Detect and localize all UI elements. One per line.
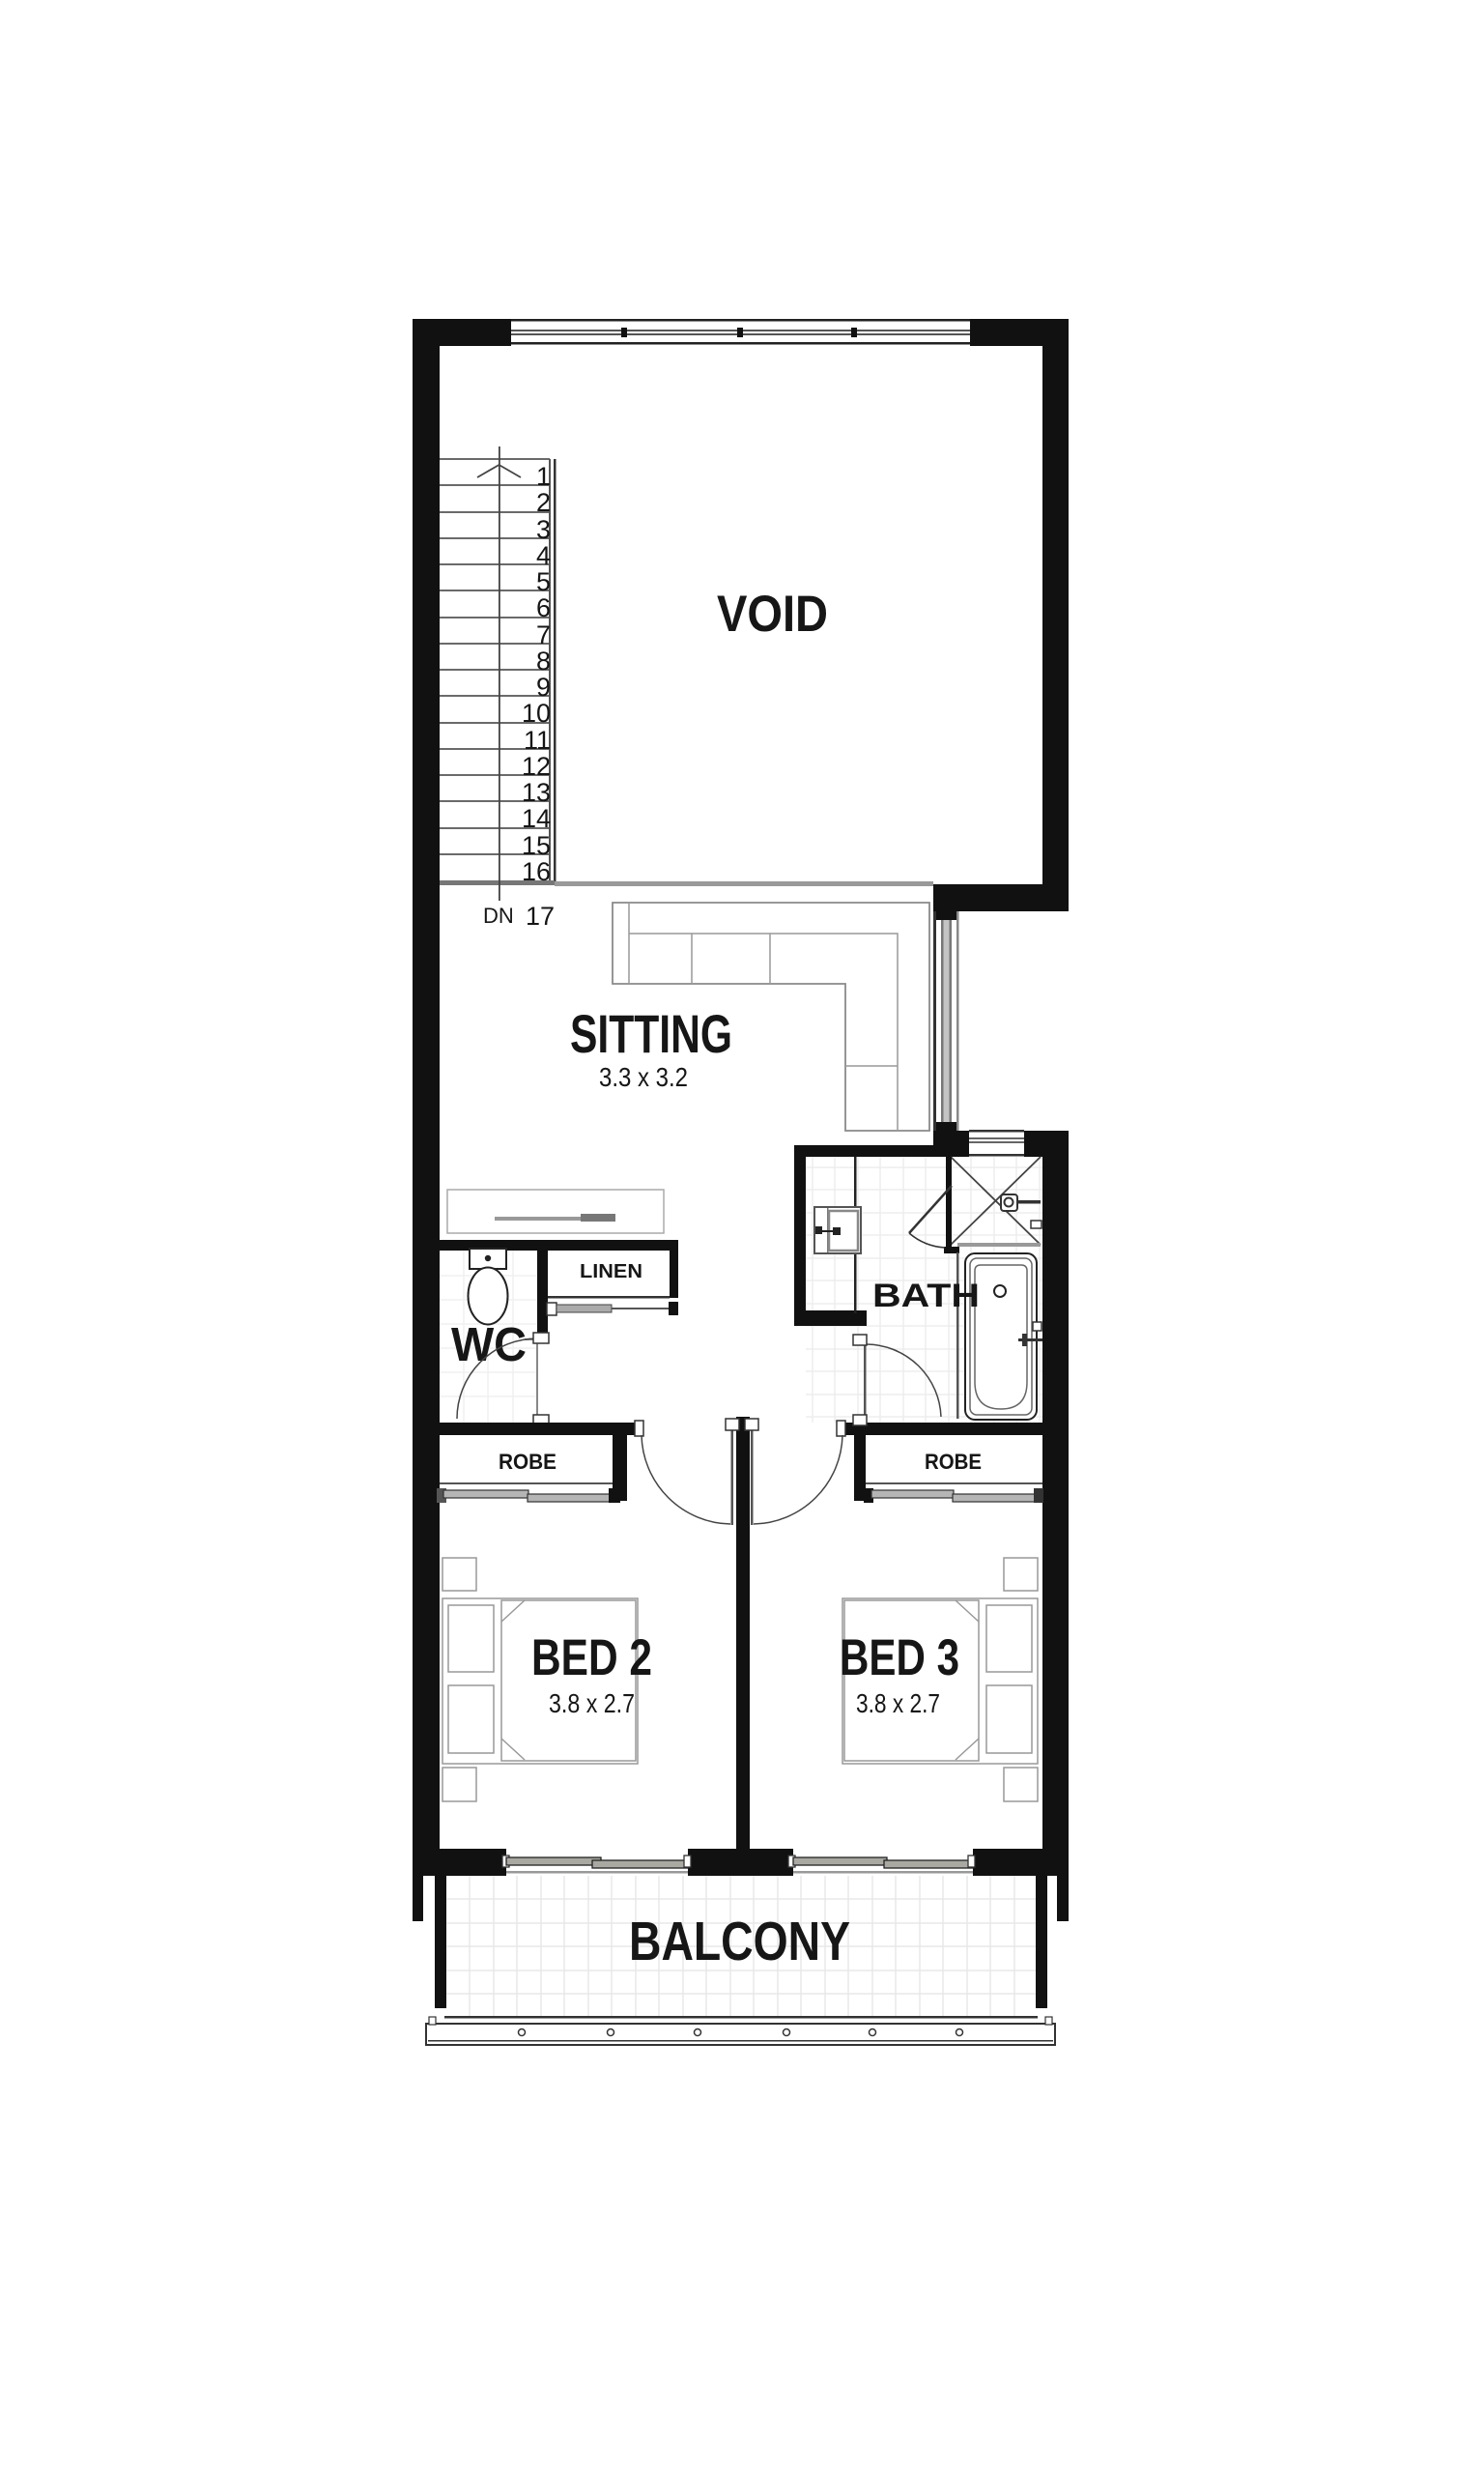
svg-text:BED 3: BED 3: [840, 1629, 959, 1686]
svg-text:1: 1: [536, 462, 551, 491]
svg-text:3: 3: [536, 515, 551, 544]
svg-text:4: 4: [536, 541, 551, 570]
svg-text:8: 8: [536, 647, 551, 676]
svg-text:6: 6: [536, 593, 551, 622]
svg-text:11: 11: [524, 726, 551, 755]
svg-text:BALCONY: BALCONY: [629, 1911, 850, 1972]
svg-text:WC: WC: [451, 1319, 527, 1371]
svg-text:SITTING: SITTING: [570, 1003, 732, 1064]
svg-text:VOID: VOID: [717, 586, 828, 643]
svg-text:LINEN: LINEN: [580, 1261, 642, 1282]
svg-text:ROBE: ROBE: [499, 1450, 556, 1474]
svg-text:13: 13: [522, 778, 551, 807]
svg-text:17: 17: [526, 902, 555, 931]
svg-text:BED 2: BED 2: [531, 1629, 652, 1686]
svg-text:9: 9: [536, 673, 551, 702]
svg-text:14: 14: [522, 804, 551, 833]
svg-text:3.8 x 2.7: 3.8 x 2.7: [549, 1688, 635, 1718]
svg-text:15: 15: [522, 831, 551, 860]
svg-text:7: 7: [536, 620, 551, 649]
svg-text:16: 16: [522, 857, 551, 886]
svg-text:3.3 x 3.2: 3.3 x 3.2: [599, 1062, 688, 1092]
svg-text:DN: DN: [483, 904, 514, 928]
svg-text:12: 12: [522, 752, 551, 781]
svg-text:5: 5: [536, 567, 551, 596]
svg-text:ROBE: ROBE: [925, 1450, 982, 1474]
svg-text:BATH: BATH: [872, 1278, 980, 1314]
svg-text:2: 2: [536, 488, 551, 517]
svg-text:3.8 x 2.7: 3.8 x 2.7: [856, 1688, 940, 1718]
svg-text:10: 10: [522, 699, 551, 728]
